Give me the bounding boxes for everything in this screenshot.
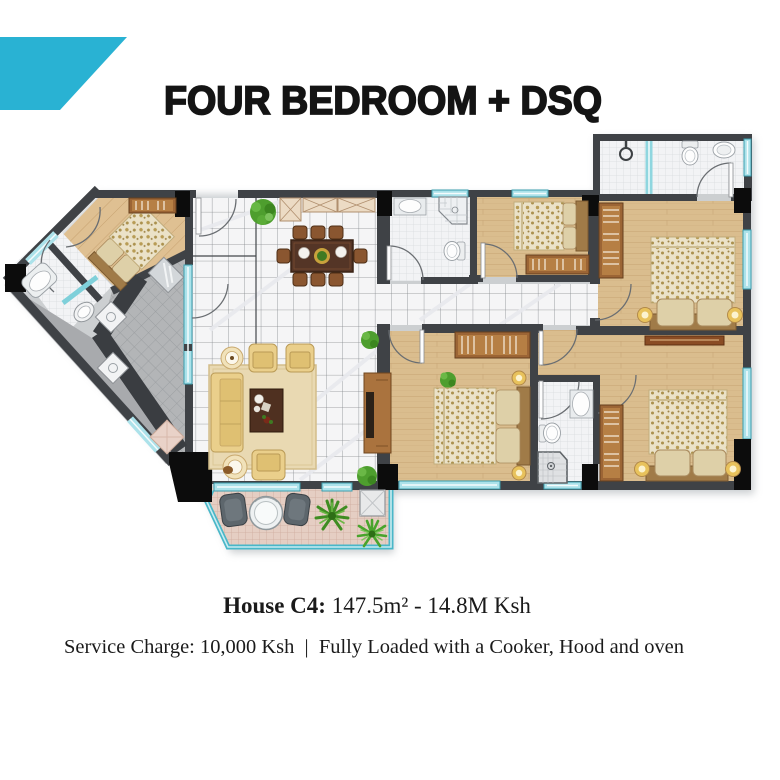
svg-text:House C4: 147.5m² - 14.8M Ksh: House C4: 147.5m² - 14.8M Ksh (223, 593, 531, 618)
svg-text:Service Charge: 10,000 Ksh |: Service Charge: 10,000 Ksh | Fully Loade… (64, 637, 684, 658)
svg-text:FOUR BEDROOM + DSQ: FOUR BEDROOM + DSQ (164, 79, 602, 123)
